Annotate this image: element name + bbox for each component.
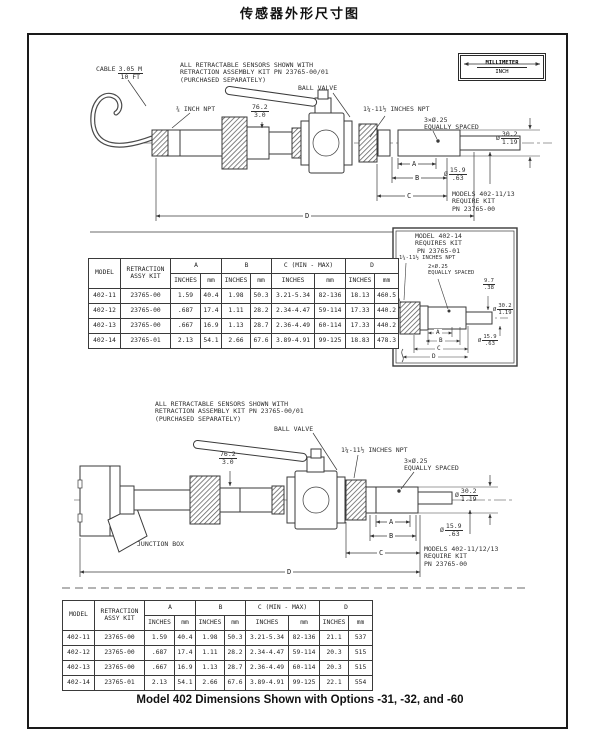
table-cell: 2.13 [171, 334, 201, 349]
inset-dim-a: A [434, 329, 442, 336]
table-cell: 537 [349, 631, 373, 646]
table-cell: 402-13 [89, 319, 121, 334]
legend-millimeter-label: MILLIMETER [477, 60, 526, 68]
col-c-inches: INCHES [246, 616, 289, 631]
col-a: A [145, 601, 196, 616]
table-cell: 1.13 [222, 319, 251, 334]
inset-title: MODEL 402-14 REQUIRES KIT PN 23765-01 [415, 233, 462, 255]
table-cell: 23765-00 [95, 631, 145, 646]
handle-clearance-dim-2: 76.2 3.0 [219, 451, 237, 467]
table-cell: 402-12 [89, 304, 121, 319]
dim-a-1: A [410, 160, 418, 168]
col-d-mm: mm [375, 274, 399, 289]
table-cell: 1.11 [222, 304, 251, 319]
table-cell: 23765-01 [95, 676, 145, 691]
table-cell: 17.4 [175, 646, 196, 661]
dimensions-table-1: MODEL RETRACTION ASSY KIT A B C (MIN - M… [88, 258, 399, 349]
table-cell: 23765-00 [95, 646, 145, 661]
table-cell: 2.36-4.49 [246, 661, 289, 676]
table-cell: .687 [145, 646, 175, 661]
dim-76-in: 3.0 [253, 112, 267, 119]
dim-97-in: .38 [483, 285, 495, 291]
inset-dim-c: C [435, 345, 443, 352]
retraction-kit-note-2: ALL RETRACTABLE SENSORS SHOWN WITH RETRA… [155, 401, 304, 423]
table-cell: 18.13 [346, 289, 375, 304]
junction-box-label: JUNCTION BOX [137, 541, 184, 548]
table-cell: 23765-00 [121, 319, 171, 334]
inset-diameter-15-dim: Ø 15.9 .63 [478, 334, 498, 347]
table-cell: 440.2 [375, 319, 399, 334]
dim-76-in: 3.0 [221, 459, 235, 466]
col-retraction: RETRACTION ASSY KIT [121, 259, 171, 289]
table-cell: 2.13 [145, 676, 175, 691]
col-b-inches: INCHES [222, 274, 251, 289]
inset-dia-30-mm: 30.2 [497, 303, 512, 310]
col-b-mm: mm [251, 274, 272, 289]
table-cell: 67.6 [251, 334, 272, 349]
inset-dia-30-in: 1.19 [497, 310, 512, 316]
drawing-sheet: 传感器外形尺寸图 [0, 0, 600, 739]
table-row: 402-1423765-012.1354.12.6667.63.89-4.919… [63, 676, 373, 691]
table-cell: 20.3 [320, 646, 349, 661]
inset-dim-d: D [430, 353, 438, 360]
table-cell: 99-125 [289, 676, 320, 691]
figure-caption: Model 402 Dimensions Shown with Options … [0, 694, 600, 706]
table-cell: 440.2 [375, 304, 399, 319]
table-cell: 1.98 [196, 631, 225, 646]
table-cell: .687 [171, 304, 201, 319]
table-cell: 2.66 [222, 334, 251, 349]
table-cell: 50.3 [251, 289, 272, 304]
col-retraction: RETRACTION ASSY KIT [95, 601, 145, 631]
table-cell: 17.33 [346, 319, 375, 334]
inset-dia-15-in: .63 [484, 341, 496, 347]
col-model: MODEL [63, 601, 95, 631]
inset-dim-b: B [437, 337, 445, 344]
table-cell: 1.59 [171, 289, 201, 304]
table-cell: 21.1 [320, 631, 349, 646]
col-c-inches: INCHES [272, 274, 315, 289]
dim-b-1: B [413, 174, 421, 182]
col-b: B [222, 259, 272, 274]
table-cell: 22.1 [320, 676, 349, 691]
col-b-mm: mm [225, 616, 246, 631]
table-cell: 554 [349, 676, 373, 691]
table-cell: 40.4 [175, 631, 196, 646]
npt-large-label-2: 1¼-11½ INCHES NPT [341, 447, 408, 454]
col-d-inches: INCHES [320, 616, 349, 631]
col-d-mm: mm [349, 616, 373, 631]
table-cell: 59-114 [289, 646, 320, 661]
diameter-15-dim-2: Ø 15.9 .63 [440, 523, 463, 539]
table-cell: 59-114 [315, 304, 346, 319]
table-cell: 82-136 [315, 289, 346, 304]
inset-stickout-dim: 9.7 .38 [483, 278, 495, 291]
cable-hook [93, 95, 152, 145]
legend-inch-label: INCH [495, 68, 508, 75]
table-cell: 402-12 [63, 646, 95, 661]
dim-c-1: C [405, 192, 413, 200]
table-cell: 515 [349, 661, 373, 676]
dia-15-in: .63 [451, 175, 465, 182]
table-cell: 2.36-4.49 [272, 319, 315, 334]
cable-length-imperial: 10 FT [120, 74, 142, 81]
diameter-symbol: Ø [455, 488, 459, 499]
table-cell: .667 [145, 661, 175, 676]
npt-small-label-1: ¾ INCH NPT [176, 106, 215, 113]
col-c: C (MIN - MAX) [272, 259, 346, 274]
table-cell: 28.2 [225, 646, 246, 661]
cable-label: CABLE 3.05 M 10 FT [96, 66, 143, 82]
table-cell: 402-11 [63, 631, 95, 646]
table-cell: 20.3 [320, 661, 349, 676]
table-cell: 515 [349, 646, 373, 661]
models-kit-note-2: MODELS 402-11/12/13 REQUIRE KIT PN 23765… [424, 546, 498, 568]
table-cell: 54.1 [201, 334, 222, 349]
handle-clearance-dim-1: 76.2 3.0 [251, 104, 269, 120]
table-cell: 23765-00 [121, 289, 171, 304]
diameter-symbol: Ø [493, 303, 496, 313]
retraction-kit-note-1: ALL RETRACTABLE SENSORS SHOWN WITH RETRA… [180, 62, 329, 84]
dim-a-2: A [387, 518, 395, 526]
dimensions-table-2-body: 402-1123765-001.5940.41.9850.33.21-5.348… [63, 631, 373, 691]
table-cell: 1.98 [222, 289, 251, 304]
cable-length-dim: 3.05 M 10 FT [118, 66, 143, 82]
dim-c-2: C [377, 549, 385, 557]
table-cell: 23765-01 [121, 334, 171, 349]
table-cell: 40.4 [201, 289, 222, 304]
col-a-inches: INCHES [171, 274, 201, 289]
col-model: MODEL [89, 259, 121, 289]
table-cell: 28.2 [251, 304, 272, 319]
table-cell: 16.9 [201, 319, 222, 334]
col-b-inches: INCHES [196, 616, 225, 631]
table-cell: 402-11 [89, 289, 121, 304]
col-a-inches: INCHES [145, 616, 175, 631]
dim-d-2: D [285, 568, 293, 576]
table-cell: 23765-00 [121, 304, 171, 319]
dim-97-mm: 9.7 [483, 278, 495, 285]
inset-npt-label: 1¼-11½ INCHES NPT [399, 255, 455, 261]
ball-valve-label-1: BALL VALVE [298, 85, 337, 92]
diameter-15-dim-1: Ø 15.9 .63 [444, 167, 467, 183]
diameter-symbol: Ø [496, 131, 500, 142]
table-cell: 3.21-5.34 [272, 289, 315, 304]
diagram1-diameter-dims [490, 118, 530, 184]
table-cell: 23765-00 [95, 661, 145, 676]
table-cell: 1.59 [145, 631, 175, 646]
col-a-mm: mm [175, 616, 196, 631]
ball-valve-label-2: BALL VALVE [274, 426, 313, 433]
table-row: 402-1323765-00.66716.91.1328.72.36-4.496… [63, 661, 373, 676]
dia-30-in: 1.19 [460, 496, 478, 503]
table-cell: 17.4 [201, 304, 222, 319]
table-cell: 28.7 [225, 661, 246, 676]
table-cell: 60-114 [315, 319, 346, 334]
table-cell: 2.34-4.47 [272, 304, 315, 319]
table-cell: 99-125 [315, 334, 346, 349]
units-legend-inner: MILLIMETER INCH [460, 55, 544, 79]
table-cell: 402-13 [63, 661, 95, 676]
table-cell: 16.9 [175, 661, 196, 676]
holes-label-1: 3×Ø.25 EQUALLY SPACED [424, 117, 479, 132]
table-cell: 54.1 [175, 676, 196, 691]
inset-diameter-30-dim: Ø 30.2 1.19 [493, 303, 513, 316]
diameter-symbol: Ø [444, 167, 448, 178]
table-cell: 402-14 [63, 676, 95, 691]
table-cell: 1.11 [196, 646, 225, 661]
dimensions-table-1-wrap: MODEL RETRACTION ASSY KIT A B C (MIN - M… [88, 258, 399, 349]
dimensions-table-2: MODEL RETRACTION ASSY KIT A B C (MIN - M… [62, 600, 373, 691]
table-cell: 18.83 [346, 334, 375, 349]
col-c: C (MIN - MAX) [246, 601, 320, 616]
dim-b-2: B [387, 532, 395, 540]
dia-30-in: 1.19 [501, 139, 519, 146]
col-d-inches: INCHES [346, 274, 375, 289]
npt-large-label-1: 1¼-11½ INCHES NPT [363, 106, 430, 113]
table-cell: 17.33 [346, 304, 375, 319]
inset-holes-label: 2×Ø.25 EQUALLY SPACED [428, 264, 474, 276]
table-cell: 402-14 [89, 334, 121, 349]
table-cell: 3.21-5.34 [246, 631, 289, 646]
dimensions-table-1-body: 402-1123765-001.5940.41.9850.33.21-5.348… [89, 289, 399, 349]
units-legend: MILLIMETER INCH [458, 53, 546, 81]
diameter-30-dim-1: Ø 30.2 1.19 [496, 131, 519, 147]
col-a: A [171, 259, 222, 274]
table-cell: .667 [171, 319, 201, 334]
table-cell: 82-136 [289, 631, 320, 646]
table-cell: 3.89-4.91 [272, 334, 315, 349]
inset-dia-15-mm: 15.9 [482, 334, 497, 341]
table-cell: 1.13 [196, 661, 225, 676]
table-cell: 3.89-4.91 [246, 676, 289, 691]
holes-label-2: 3×Ø.25 EQUALLY SPACED [404, 458, 459, 473]
table-cell: 460.5 [375, 289, 399, 304]
table-cell: 60-114 [289, 661, 320, 676]
table-row: 402-1123765-001.5940.41.9850.33.21-5.348… [89, 289, 399, 304]
models-kit-note-1: MODELS 402-11/13 REQUIRE KIT PN 23765-00 [452, 191, 515, 213]
col-d: D [320, 601, 373, 616]
table-row: 402-1323765-00.66716.91.1328.72.36-4.496… [89, 319, 399, 334]
col-c-mm: mm [315, 274, 346, 289]
diagram2-diameter-dims [470, 475, 490, 534]
dia-15-in: .63 [447, 531, 461, 538]
col-c-mm: mm [289, 616, 320, 631]
cable-text: CABLE [96, 66, 116, 82]
diameter-symbol: Ø [478, 334, 481, 344]
table-row: 402-1223765-00.68717.41.1128.22.34-4.475… [89, 304, 399, 319]
col-d: D [346, 259, 399, 274]
table-cell: 2.34-4.47 [246, 646, 289, 661]
table-cell: 2.66 [196, 676, 225, 691]
dimensions-table-2-wrap: MODEL RETRACTION ASSY KIT A B C (MIN - M… [62, 600, 373, 691]
col-b: B [196, 601, 246, 616]
table-cell: 67.6 [225, 676, 246, 691]
col-a-mm: mm [201, 274, 222, 289]
diameter-symbol: Ø [440, 523, 444, 534]
table-row: 402-1123765-001.5940.41.9850.33.21-5.348… [63, 631, 373, 646]
table-row: 402-1223765-00.68717.41.1128.22.34-4.475… [63, 646, 373, 661]
table-cell: 478.3 [375, 334, 399, 349]
diameter-30-dim-2: Ø 30.2 1.19 [455, 488, 478, 504]
dim-d-1: D [303, 212, 311, 220]
table-row: 402-1423765-012.1354.12.6667.63.89-4.919… [89, 334, 399, 349]
table-cell: 50.3 [225, 631, 246, 646]
table-cell: 28.7 [251, 319, 272, 334]
